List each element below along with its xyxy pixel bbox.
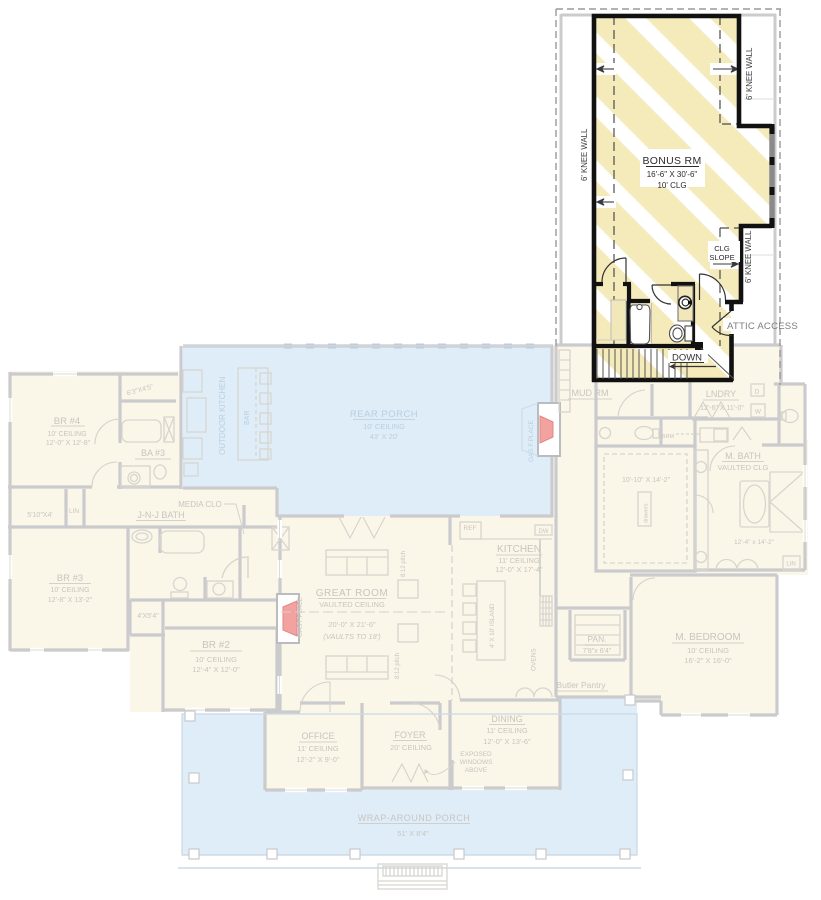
svg-text:20' CEILING: 20' CEILING	[390, 743, 432, 752]
svg-text:BR #4: BR #4	[54, 416, 80, 427]
svg-text:7'8"x 6'4": 7'8"x 6'4"	[583, 648, 612, 655]
svg-text:W: W	[755, 409, 762, 416]
svg-text:EXPOSED: EXPOSED	[460, 751, 492, 758]
svg-text:GAS F.PLACE: GAS F.PLACE	[528, 419, 535, 462]
svg-text:BR #2: BR #2	[202, 640, 230, 651]
svg-text:43' X 20': 43' X 20'	[370, 432, 399, 441]
svg-text:12'-2" X 9'-0": 12'-2" X 9'-0"	[296, 755, 340, 764]
svg-text:10' CEILING: 10' CEILING	[195, 655, 237, 664]
svg-text:10' CEILING: 10' CEILING	[50, 587, 89, 594]
svg-text:OFFICE: OFFICE	[302, 731, 335, 741]
svg-text:VAULTED CLG: VAULTED CLG	[718, 463, 769, 472]
svg-text:LNDRY: LNDRY	[706, 389, 736, 399]
svg-text:M. BEDROOM: M. BEDROOM	[675, 632, 741, 643]
svg-text:10' CEILING: 10' CEILING	[47, 431, 86, 438]
svg-text:11' CEILING: 11' CEILING	[486, 726, 527, 735]
svg-text:LIN: LIN	[69, 508, 79, 515]
svg-text:(VAULTS TO 18'): (VAULTS TO 18')	[323, 632, 381, 641]
svg-text:20'-0" X 21'-6": 20'-0" X 21'-6"	[328, 620, 376, 629]
svg-text:6' KNEE WALL: 6' KNEE WALL	[745, 47, 754, 100]
svg-text:MUD RM: MUD RM	[572, 388, 609, 398]
svg-text:ATTIC ACCESS: ATTIC ACCESS	[727, 321, 798, 332]
svg-text:12'-0" X 13'-6": 12'-0" X 13'-6"	[483, 737, 531, 746]
svg-text:KITCHEN: KITCHEN	[497, 544, 541, 555]
svg-text:GREAT ROOM: GREAT ROOM	[316, 588, 388, 599]
svg-text:DOWN: DOWN	[672, 353, 702, 364]
svg-text:12'-6" X 11'-0": 12'-6" X 11'-0"	[700, 405, 744, 412]
svg-text:GAS F.PLACE: GAS F.PLACE	[297, 597, 304, 637]
svg-text:BA #3: BA #3	[141, 448, 165, 458]
svg-text:51' X 8'4": 51' X 8'4"	[397, 829, 429, 838]
svg-text:8:12 pitch: 8:12 pitch	[401, 551, 407, 577]
svg-text:5'10"X4': 5'10"X4'	[27, 512, 52, 519]
svg-text:4' X 10' ISLAND: 4' X 10' ISLAND	[489, 603, 496, 648]
svg-text:12'-4" x 14'-2": 12'-4" x 14'-2"	[734, 539, 775, 546]
svg-text:Butler Pantry: Butler Pantry	[556, 680, 606, 690]
svg-text:CLG: CLG	[714, 244, 730, 253]
svg-text:WRAP-AROUND PORCH: WRAP-AROUND PORCH	[358, 813, 471, 823]
svg-text:D: D	[755, 389, 760, 396]
svg-text:BONUS RM: BONUS RM	[643, 155, 702, 167]
svg-text:SLOPE: SLOPE	[709, 253, 734, 262]
svg-text:11' CEILING: 11' CEILING	[297, 744, 338, 753]
svg-text:BR #3: BR #3	[57, 573, 83, 584]
svg-text:LIN: LIN	[786, 562, 795, 568]
svg-text:12'-0" X 17'-4": 12'-0" X 17'-4"	[495, 565, 543, 574]
svg-text:10' CEILING: 10' CEILING	[363, 422, 405, 431]
svg-text:drawers: drawers	[644, 503, 650, 523]
svg-text:10'-10" X 14'-2": 10'-10" X 14'-2"	[622, 477, 671, 484]
svg-text:M. BATH: M. BATH	[725, 451, 761, 461]
svg-text:16'-6" X 30'-6": 16'-6" X 30'-6"	[647, 170, 698, 179]
svg-text:12'-8" X 13'-2": 12'-8" X 13'-2"	[48, 597, 93, 604]
svg-text:J-N-J BATH: J-N-J BATH	[137, 510, 184, 520]
svg-text:PAN.: PAN.	[587, 634, 606, 644]
svg-text:MEDIA CLO: MEDIA CLO	[178, 500, 222, 509]
svg-text:DW: DW	[539, 529, 549, 535]
svg-text:10' CEILING: 10' CEILING	[687, 646, 729, 655]
svg-text:6' KNEE WALL: 6' KNEE WALL	[580, 128, 589, 181]
svg-text:8:12 pitch: 8:12 pitch	[395, 653, 401, 679]
svg-text:BAR: BAR	[244, 411, 251, 425]
svg-text:WINDOWS: WINDOWS	[460, 759, 494, 766]
svg-text:REF: REF	[464, 525, 477, 532]
svg-text:11' CEILING: 11' CEILING	[498, 556, 539, 565]
svg-text:6' KNEE WALL: 6' KNEE WALL	[744, 230, 753, 283]
svg-text:OVENS: OVENS	[531, 648, 538, 671]
svg-text:4'X5'4": 4'X5'4"	[137, 613, 159, 620]
svg-text:OUTDOOR KITCHEN: OUTDOOR KITCHEN	[218, 377, 227, 455]
svg-text:FOYER: FOYER	[394, 730, 426, 740]
svg-text:DINING: DINING	[491, 714, 523, 724]
svg-text:REAR PORCH: REAR PORCH	[350, 409, 418, 420]
svg-text:ABOVE: ABOVE	[465, 767, 488, 774]
svg-text:BRM: BRM	[662, 434, 675, 440]
svg-text:12'-4" X 12'-0": 12'-4" X 12'-0"	[192, 665, 240, 674]
svg-text:12'-0" X 12'-8": 12'-0" X 12'-8"	[46, 440, 91, 447]
svg-text:VAULTED CEILING: VAULTED CEILING	[319, 600, 385, 609]
svg-text:10' CLG: 10' CLG	[657, 181, 686, 190]
svg-text:16'-2" X 16'-0": 16'-2" X 16'-0"	[684, 656, 732, 665]
